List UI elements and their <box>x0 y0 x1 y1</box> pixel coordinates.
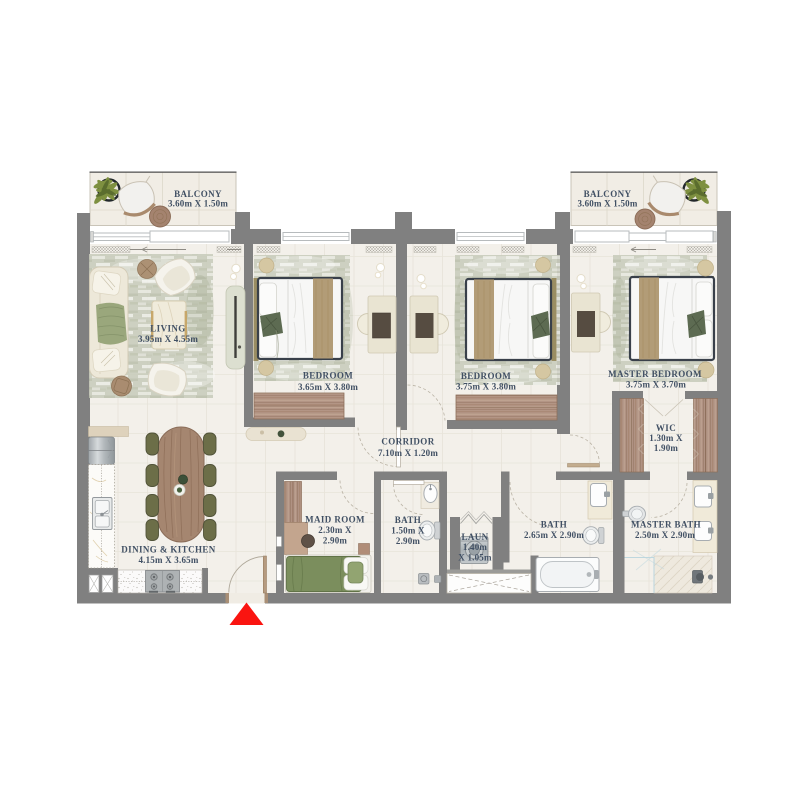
svg-text:BALCONY: BALCONY <box>174 189 222 199</box>
svg-text:BEDROOM: BEDROOM <box>461 371 511 381</box>
svg-text:3.95m X 4.55m: 3.95m X 4.55m <box>138 334 198 344</box>
svg-text:1.90m: 1.90m <box>654 443 679 453</box>
svg-text:3.60m X 1.50m: 3.60m X 1.50m <box>168 199 228 209</box>
svg-text:CORRIDOR: CORRIDOR <box>381 437 434 447</box>
svg-text:3.60m X 1.50m: 3.60m X 1.50m <box>577 199 637 209</box>
svg-text:X 1.05m: X 1.05m <box>458 553 492 563</box>
svg-text:3.65m X 3.80m: 3.65m X 3.80m <box>298 382 358 392</box>
svg-text:LAUN: LAUN <box>461 532 488 542</box>
svg-text:3.75m X 3.70m: 3.75m X 3.70m <box>626 380 686 390</box>
svg-text:MASTER BEDROOM: MASTER BEDROOM <box>608 369 702 379</box>
svg-text:4.15m X 3.65m: 4.15m X 3.65m <box>138 555 198 565</box>
svg-text:1.50m X: 1.50m X <box>391 526 425 536</box>
svg-text:7.10m X 1.20m: 7.10m X 1.20m <box>378 448 438 458</box>
svg-text:2.65m X 2.90m: 2.65m X 2.90m <box>524 530 584 540</box>
svg-text:BATH: BATH <box>541 520 567 530</box>
svg-text:WIC: WIC <box>656 423 676 433</box>
svg-text:MAID ROOM: MAID ROOM <box>305 515 365 525</box>
svg-text:BEDROOM: BEDROOM <box>303 371 353 381</box>
svg-text:2.90m: 2.90m <box>396 536 421 546</box>
svg-text:2.50m X 2.90m: 2.50m X 2.90m <box>635 530 695 540</box>
svg-text:1.30m X: 1.30m X <box>649 433 683 443</box>
svg-text:1.40m: 1.40m <box>463 542 488 552</box>
svg-text:BATH: BATH <box>395 515 421 525</box>
svg-text:3.75m X 3.80m: 3.75m X 3.80m <box>456 382 516 392</box>
svg-text:2.30m X: 2.30m X <box>318 525 352 535</box>
svg-text:MASTER BATH: MASTER BATH <box>631 520 701 530</box>
svg-text:2.90m: 2.90m <box>323 536 348 546</box>
svg-text:LIVING: LIVING <box>150 324 185 334</box>
svg-text:DINING & KITCHEN: DINING & KITCHEN <box>121 545 216 555</box>
svg-text:BALCONY: BALCONY <box>584 189 632 199</box>
